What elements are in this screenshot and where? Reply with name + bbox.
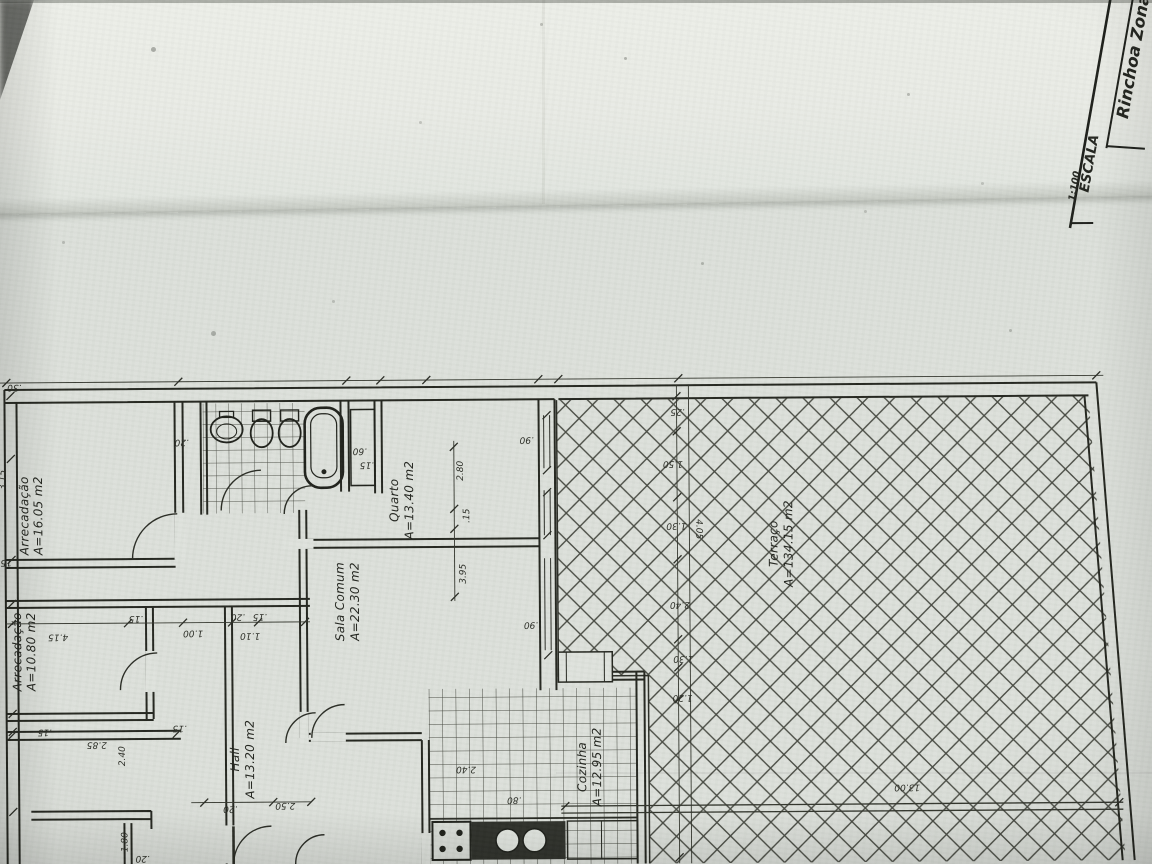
dimension-label: 4.15 [48,632,68,642]
room-label-arrecadacao-16: Arrecadação A=16.05 m2 [17,476,46,556]
room-name: Hall [228,747,242,772]
floor-plan-drawing: Arrecadação A=16.05 m2 Arrecadação A=10.… [0,0,1152,864]
dimension-label: .90 [524,619,539,629]
photographed-floor-plan: Arrecadação A=16.05 m2 Arrecadação A=10.… [0,0,1152,864]
kitchen-annex [558,652,612,682]
room-name: Arrecadação [17,476,32,556]
room-area: A=13.20 m2 [243,720,258,800]
dimension-label: .15 [253,611,268,621]
photo-edge-shadow [0,0,1152,3]
dimension-label: .20 [223,803,238,813]
dimension-label: 1.80 [120,832,130,852]
dimension-label: 1.50 [663,458,683,468]
kitchen-sink [471,821,565,860]
dimension-label: 1.20 [672,692,692,702]
dimension-label: .20 [135,853,150,863]
room-area: A=10.80 m2 [24,612,39,692]
dimension-label: .15 [462,508,472,523]
room-label-quarto: Quarto A=13.40 m2 [387,461,417,541]
dimension-label: 2.40 [456,764,476,774]
dimension-label: 1.30 [673,653,693,663]
room-area: A=16.05 m2 [31,476,46,556]
dimension-label: .20 [174,437,189,447]
room-area: A=12.95 m2 [590,727,605,807]
dimension-label: .15 [129,613,144,623]
dimension-label: .80 [507,794,522,804]
room-name: Cozinha [575,742,589,792]
title-block: Rinchoa Zona ESCALA 1:100 [1062,0,1152,238]
paper-specks [0,0,3,3]
dimension-label: .15 [359,459,374,469]
dimension-label: 4.05 [693,519,703,539]
stove [432,822,470,860]
room-name: Quarto [387,479,401,522]
dimension-label: .15 [37,727,52,737]
dimension-label: .25 [670,406,685,416]
room-label-arrecadacao-10: Arrecadação A=10.80 m2 [10,612,39,692]
room-label-sala-comum: Sala Comum A=22.30 m2 [333,562,363,642]
dimension-label: .60 [352,445,367,455]
dimension-label: 2.40 [670,599,690,609]
title-block-location: Rinchoa Zona [1113,0,1152,120]
dimension-label: 1.00 [183,628,203,638]
room-area: A=13.40 m2 [402,461,417,541]
dimension-label: .90 [519,434,534,444]
dimension-label: 1.10 [240,630,260,640]
dimension-label: .20 [231,611,246,621]
room-name: Sala Comum [333,562,348,641]
dimension-label: 2.80 [456,460,466,480]
dimension-label: 2.85 [87,739,107,749]
dimension-label: 3.15 [0,470,8,490]
dimension-label: 1.30 [666,520,686,530]
dimension-label: 2.50 [275,800,295,810]
room-name: Terraço [766,520,780,567]
room-area: A=134.15 m2 [781,500,796,588]
bathtub [305,408,344,488]
room-name: Arrecadação [10,612,25,692]
dimension-label: .15 [172,723,187,733]
dimension-label: .15 [0,557,15,567]
dimension-label: 13.00 [894,782,920,792]
dimension-label: .30 [7,382,22,392]
door-openings [144,511,430,864]
dimension-label: 3.95 [459,563,469,583]
dimension-label: 2.40 [118,746,128,766]
room-area: A=22.30 m2 [348,562,363,642]
terrace-hatch [556,396,1125,864]
